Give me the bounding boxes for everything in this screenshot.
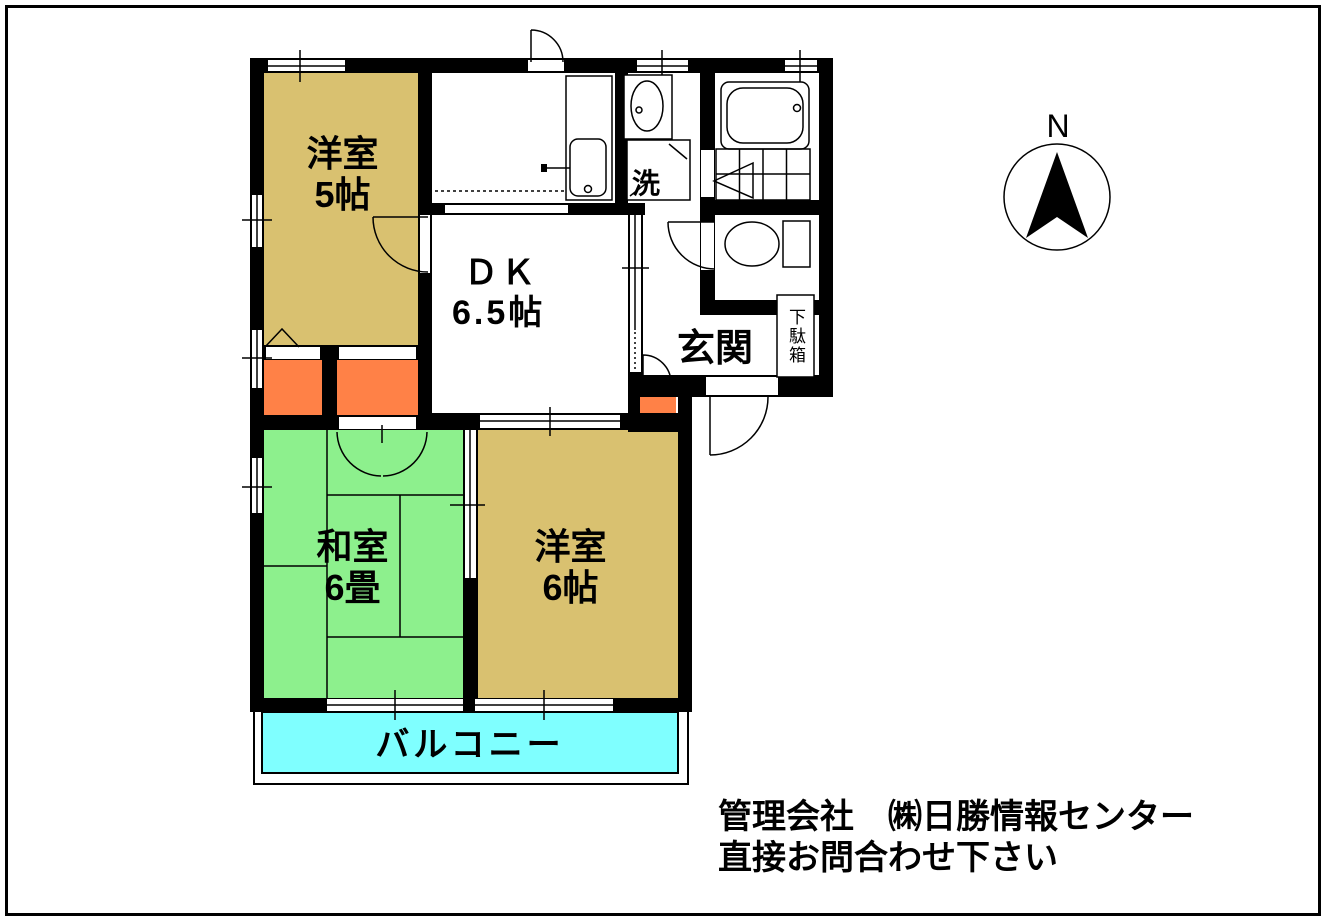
balcony-label: バルコニー [330,717,610,766]
management-company-line: 管理会社 ㈱日勝情報センター [718,797,1194,838]
room-name: ＤＫ [452,253,612,293]
compass [1004,144,1110,250]
door-entrance [710,397,768,455]
room-name: バルコニー [375,726,564,764]
genkan-label: 玄関 [660,317,770,372]
floor-plan-page: 洋室 5帖 ＤＫ 6.5帖 玄関 洗 下駄箱 和室 6畳 洋室 6帖 バルコニー… [0,0,1323,918]
shoe-cabinet-label: 下駄箱 [777,297,814,375]
room-size: 5帖 [270,174,415,215]
room-name: 洋室 [270,133,415,174]
toilet-bowl [725,222,779,266]
western-room-6-label: 洋室 6帖 [498,526,643,608]
door-bathroom-fold [714,163,753,198]
window-top-bath [785,50,817,82]
room-name: 洗 [632,168,660,199]
laundry-label: 洗 [629,162,663,202]
door-kitchen-back [531,30,563,62]
closet-left [264,352,322,417]
contact-instruction-line: 直接お問合わせ下さい [718,838,1194,879]
closet-right [337,352,418,417]
dk-label: ＤＫ 6.5帖 [452,253,612,333]
room-size: 6.5帖 [452,293,612,333]
sliding-door-dk-genkan [622,215,649,330]
bathroom-tile-floor [716,149,810,200]
floor-plan-drawing [0,0,1323,918]
north-letter: N [1046,108,1069,144]
room-name: 下駄箱 [783,308,808,365]
toilet-tank [783,221,810,267]
kitchen-counter [435,76,612,200]
washbasin [624,75,672,139]
western-room-5-label: 洋室 5帖 [270,133,415,215]
room-size: 6畳 [280,567,425,608]
japanese-room-label: 和室 6畳 [280,526,425,608]
room-name: 玄関 [677,328,753,370]
room-size: 6帖 [498,567,643,608]
footer-contact: 管理会社 ㈱日勝情報センター 直接お問合わせ下さい [718,797,1194,879]
toilet [725,221,810,267]
kitchen-sink [570,139,606,196]
north-arrow-icon [1026,152,1088,238]
room-name: 和室 [280,526,425,567]
bathtub [721,82,809,149]
room-name: 洋室 [498,526,643,567]
compass-north-label: N [1042,108,1074,145]
